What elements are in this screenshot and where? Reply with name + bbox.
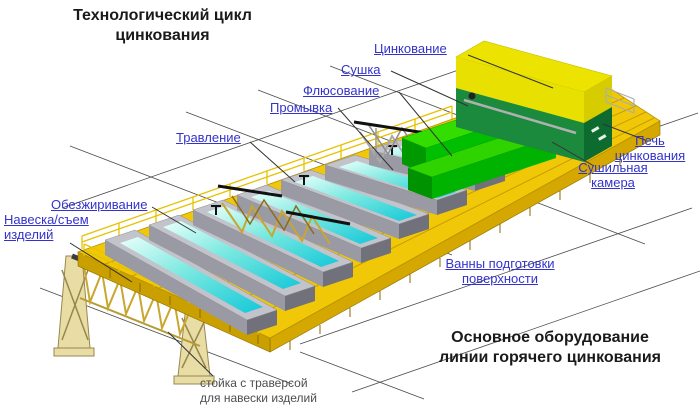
label-zinc: Цинкование xyxy=(374,41,447,56)
label-rinsing: Промывка xyxy=(270,100,332,115)
caption-stand-line1: стойка с траверсой xyxy=(200,376,317,391)
label-prep-baths-line1: Ванны подготовки xyxy=(430,256,570,271)
label-furnace: Печь цинкования xyxy=(602,133,698,163)
label-drying-chamber-line1: Сушильная xyxy=(558,160,668,175)
label-drying-chamber: Сушильная камера xyxy=(558,160,668,190)
label-loading: Навеска/съем изделий xyxy=(4,212,89,242)
title-top-line2: цинкования xyxy=(25,26,300,46)
label-pickling: Травление xyxy=(176,130,241,145)
label-prep-baths: Ванны подготовки поверхности xyxy=(430,256,570,286)
title-top: Технологический цикл цинкования xyxy=(25,6,300,46)
label-loading-line1: Навеска/съем xyxy=(4,212,89,227)
caption-stand: стойка с траверсой для навески изделий xyxy=(200,376,317,406)
label-drying-chamber-line2: камера xyxy=(558,175,668,190)
label-degreasing: Обезжиривание xyxy=(51,197,147,212)
title-bottom: Основное оборудование линии горячего цин… xyxy=(400,328,700,368)
title-bottom-line1: Основное оборудование xyxy=(400,328,700,348)
title-top-line1: Технологический цикл xyxy=(25,6,300,26)
label-loading-line2: изделий xyxy=(4,227,89,242)
galvanizing-line-diagram: { "title_top": {"line1": "Технологически… xyxy=(0,0,700,410)
label-prep-baths-line2: поверхности xyxy=(430,271,570,286)
caption-stand-line2: для навески изделий xyxy=(200,391,317,406)
leader-pickling xyxy=(250,142,295,182)
burner xyxy=(469,93,476,100)
title-bottom-line2: линии горячего цинкования xyxy=(400,348,700,368)
label-fluxing: Флюсование xyxy=(303,83,379,98)
label-furnace-line1: Печь xyxy=(602,133,698,148)
label-drying: Сушка xyxy=(341,62,381,77)
